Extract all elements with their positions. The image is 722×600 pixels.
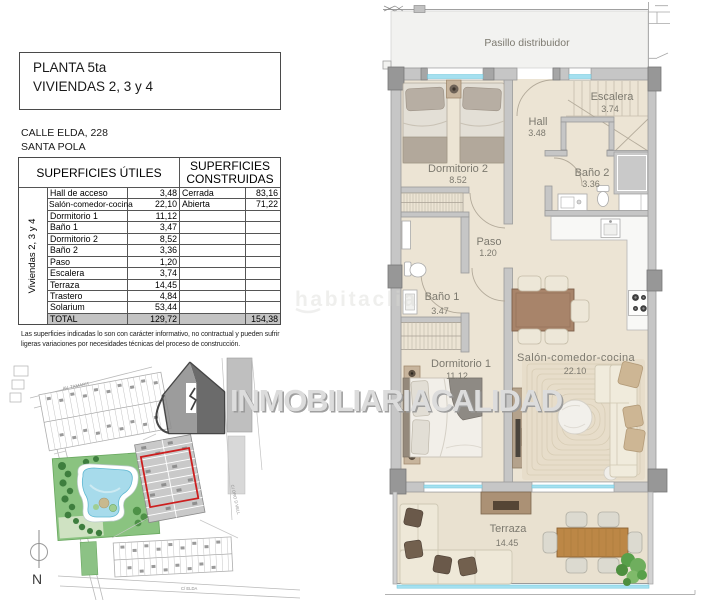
svg-text:Hall: Hall xyxy=(529,116,548,128)
svg-text:Dormitorio 1: Dormitorio 1 xyxy=(431,358,491,370)
svg-text:Dormitorio 2: Dormitorio 2 xyxy=(428,163,488,175)
svg-text:3.48: 3.48 xyxy=(528,128,546,138)
svg-text:Paso: Paso xyxy=(476,236,501,248)
svg-text:1.20: 1.20 xyxy=(479,248,497,258)
svg-text:11.12: 11.12 xyxy=(446,371,468,381)
svg-text:Pasillo distribuidor: Pasillo distribuidor xyxy=(484,37,570,49)
svg-text:3.47: 3.47 xyxy=(431,306,449,316)
svg-text:C/ ELDA: C/ ELDA xyxy=(181,586,197,591)
svg-text:Baño 1: Baño 1 xyxy=(425,291,460,303)
svg-text:Baño 2: Baño 2 xyxy=(575,167,610,179)
svg-text:22.10: 22.10 xyxy=(564,366,587,376)
svg-text:14.45: 14.45 xyxy=(496,538,519,548)
svg-text:INMOBILIARIACALIDAD: INMOBILIARIACALIDAD xyxy=(230,383,563,418)
svg-text:N: N xyxy=(32,571,42,587)
svg-text:Escalera: Escalera xyxy=(591,91,635,103)
svg-text:8.52: 8.52 xyxy=(449,175,467,185)
svg-text:habitaclia: habitaclia xyxy=(295,288,418,311)
svg-text:3.36: 3.36 xyxy=(582,179,600,189)
svg-text:3.74: 3.74 xyxy=(601,104,619,114)
svg-text:Salón-comedor-cocina: Salón-comedor-cocina xyxy=(517,352,636,364)
svg-text:Terraza: Terraza xyxy=(490,523,528,535)
